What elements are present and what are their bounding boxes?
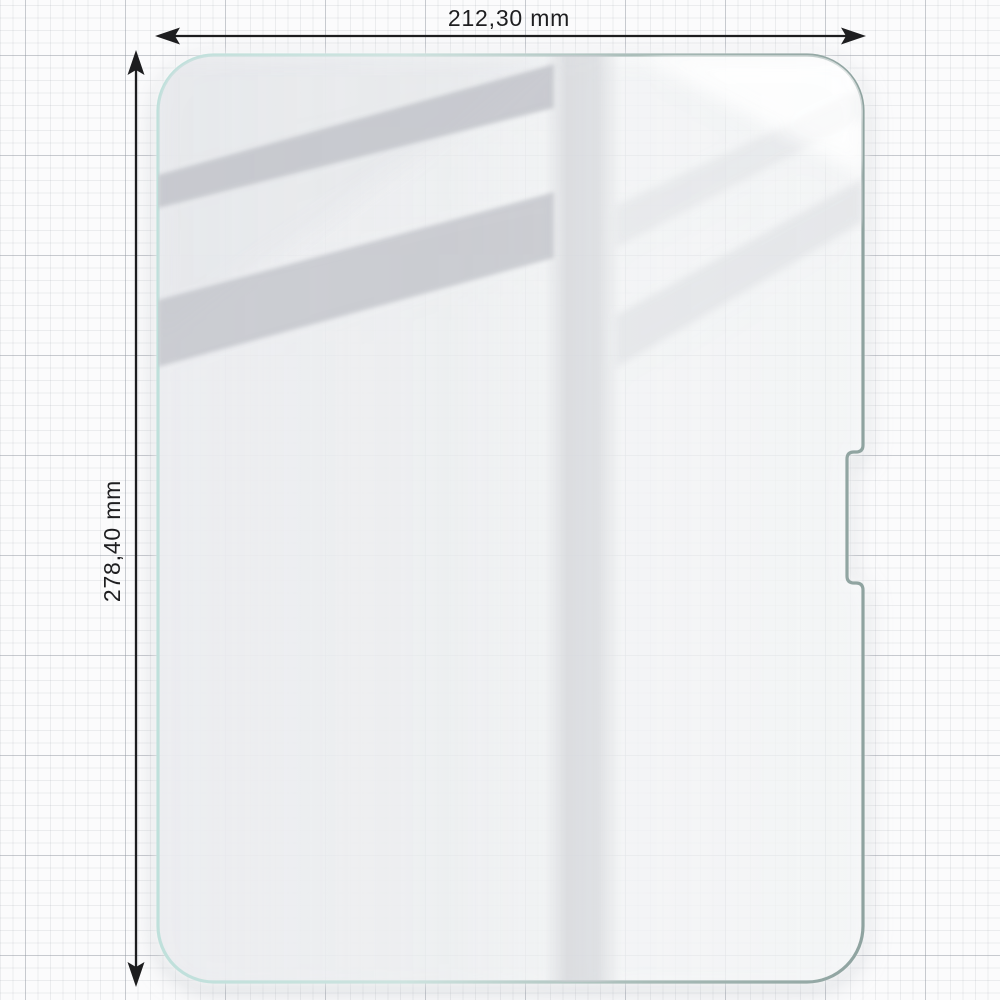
reflection-vertical-column [544,55,620,982]
diagram-canvas [0,0,1000,1000]
width-dimension-label: 212,30 mm [379,5,639,32]
height-dimension-label: 278,40 mm [92,431,132,651]
screen-protector-glass [158,55,863,982]
graph-paper-background: 212,30 mm 278,40 mm [0,0,1000,1000]
